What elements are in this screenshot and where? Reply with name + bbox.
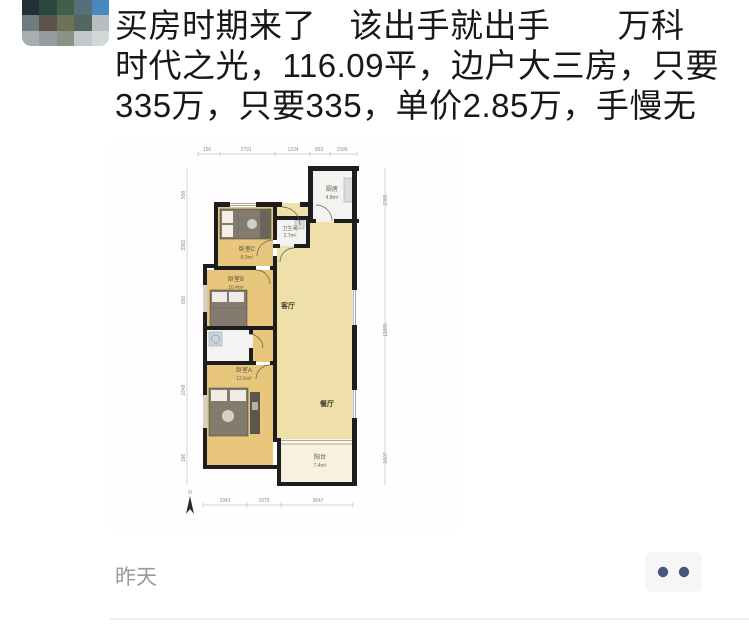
user-avatar[interactable]	[22, 0, 109, 46]
dim-left-2: 650	[181, 296, 187, 305]
floorplan-image[interactable]: 厨房 4.8m² 卫生间 2.7m² 卧室C 8.0m² 卧室B 10.4m² …	[110, 138, 460, 530]
bath-label: 卫生间	[282, 225, 297, 232]
balcony-label: 阳台	[314, 453, 326, 461]
post-text-line: 时代之光，116.09平，边户大三房，只要	[115, 46, 725, 86]
balcony-area: 7.4m²	[314, 463, 327, 469]
comment-menu-button[interactable]	[645, 552, 702, 592]
dining-label: 餐厅	[319, 399, 334, 408]
bedroomC-label: 卧室C	[239, 245, 256, 253]
dim-bottom-2: 3647	[312, 498, 323, 504]
dim-top-2: 1234	[287, 147, 298, 153]
dim-right-0: 2385	[383, 194, 389, 205]
post-text-line: 335万，只要335，单价2.85万，手慢无	[115, 86, 725, 126]
dim-top-1: 2791	[240, 147, 251, 153]
dim-top-0: 156	[203, 147, 212, 153]
dim-bottom-0: 1941	[219, 498, 230, 504]
timestamp: 昨天	[115, 561, 157, 591]
north-arrow-icon: N	[186, 490, 194, 514]
two-dots-icon	[657, 566, 691, 578]
post-text-line: 买房时期来了 该出手就出手 万科	[115, 6, 725, 46]
bath-area: 2.7m²	[284, 233, 297, 239]
bedroomB-label: 卧室B	[228, 275, 244, 283]
bedroomA-label: 卧室A	[236, 366, 252, 374]
bedroomB-area: 10.4m²	[228, 285, 244, 291]
dim-left-0: 508	[181, 191, 187, 200]
dim-left-4: 186	[181, 454, 187, 463]
dim-left-1: 2982	[181, 239, 187, 250]
dim-bottom-1: 1579	[258, 498, 269, 504]
post-text: 买房时期来了 该出手就出手 万科 时代之光，116.09平，边户大三房，只要 3…	[115, 6, 725, 126]
bedroomC-area: 8.0m²	[241, 255, 254, 261]
dim-top-4: 1599	[336, 147, 347, 153]
post-divider	[110, 618, 749, 620]
floorplan-drawing: 厨房 4.8m² 卫生间 2.7m² 卧室C 8.0m² 卧室B 10.4m² …	[160, 140, 410, 525]
dim-left-3: 1848	[181, 384, 187, 395]
kitchen-area: 4.8m²	[326, 195, 339, 201]
dim-right-1: 11885	[383, 323, 389, 337]
dim-top-3: 893	[315, 147, 324, 153]
north-label: N	[188, 490, 192, 496]
living-label: 客厅	[280, 301, 295, 310]
dim-right-2: 1607	[383, 452, 389, 463]
bedroomA-area: 12.6m²	[236, 376, 252, 382]
kitchen-label: 厨房	[326, 185, 338, 193]
